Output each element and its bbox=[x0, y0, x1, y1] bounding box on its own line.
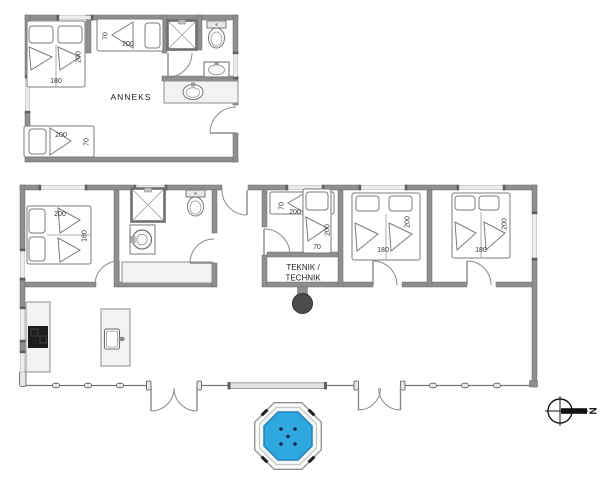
wood-stove bbox=[293, 287, 313, 314]
north-label: N bbox=[587, 407, 598, 414]
anneks-building: 180 200 70 200 200 70 bbox=[24, 15, 238, 162]
bathroom-counter bbox=[122, 262, 212, 283]
bed-width-label: 180 bbox=[377, 247, 389, 254]
bed-length-label: 200 bbox=[54, 211, 66, 218]
bedroom-left: 200 180 bbox=[27, 206, 119, 285]
anneks-single-bed-bottom: 200 70 bbox=[24, 126, 94, 157]
bed-width-label: 70 bbox=[84, 138, 91, 146]
main-entry-door bbox=[222, 190, 247, 215]
anneks-label: ANNEKS bbox=[111, 92, 152, 102]
bed-width-label: 180 bbox=[50, 78, 62, 85]
bedroom-right-door bbox=[467, 261, 491, 285]
french-door-right bbox=[359, 386, 401, 410]
bed-width-label: 70 bbox=[279, 202, 286, 210]
anneks-double-bed: 180 200 bbox=[27, 21, 85, 87]
bed-width-label: 70 bbox=[103, 32, 110, 40]
main-shower bbox=[132, 188, 165, 222]
main-bathroom bbox=[122, 188, 214, 283]
bathroom-door bbox=[190, 239, 214, 263]
bed-width-label: 70 bbox=[313, 244, 321, 251]
compass: N bbox=[545, 396, 598, 426]
bed-length-label: 200 bbox=[122, 41, 134, 48]
bedroom-middle: 180 200 bbox=[352, 193, 420, 285]
main-building: 200 180 bbox=[20, 185, 538, 411]
main-toilet bbox=[186, 190, 205, 216]
anneks-toilet bbox=[207, 21, 226, 48]
hot-tub bbox=[255, 403, 322, 470]
bed-width-label: 180 bbox=[82, 230, 89, 242]
anneks-entry-door bbox=[210, 107, 236, 133]
french-door-left bbox=[151, 386, 197, 411]
floor-plan-page: 180 200 70 200 200 70 bbox=[0, 0, 600, 484]
cooktop bbox=[28, 326, 48, 348]
floor-plan: 180 200 70 200 200 70 bbox=[0, 0, 600, 484]
bedroom-middle-door bbox=[373, 261, 397, 285]
bed-length-label: 200 bbox=[55, 132, 67, 139]
terrace-window bbox=[228, 382, 328, 389]
kitchen bbox=[26, 302, 130, 372]
technical-room-label-line1: TEKNIK / bbox=[286, 263, 320, 272]
anneks-single-bed-top: 70 200 bbox=[97, 19, 163, 51]
technical-room: TEKNIK / TECHNIK bbox=[285, 263, 321, 283]
bunk-room-door bbox=[264, 229, 290, 255]
kitchen-island bbox=[101, 309, 130, 366]
bunk-room: 70 200 200 70 bbox=[264, 189, 334, 255]
anneks-bathroom-sink bbox=[204, 62, 229, 77]
main-washbasin bbox=[130, 225, 155, 254]
anneks-kitchenette bbox=[164, 81, 238, 103]
north-arrow bbox=[561, 408, 587, 414]
bed-length-label: 200 bbox=[325, 224, 332, 236]
bedroom-right: 180 200 bbox=[452, 193, 510, 285]
anneks-bathroom-door bbox=[168, 53, 192, 77]
technical-room-label-line2: TECHNIK bbox=[285, 274, 321, 283]
bed-length-label: 200 bbox=[405, 216, 412, 228]
bed-length-label: 200 bbox=[289, 209, 301, 216]
anneks-shower bbox=[168, 20, 197, 50]
bed-length-label: 200 bbox=[76, 51, 83, 63]
bed-length-label: 200 bbox=[502, 218, 509, 230]
bed-width-label: 180 bbox=[475, 247, 487, 254]
